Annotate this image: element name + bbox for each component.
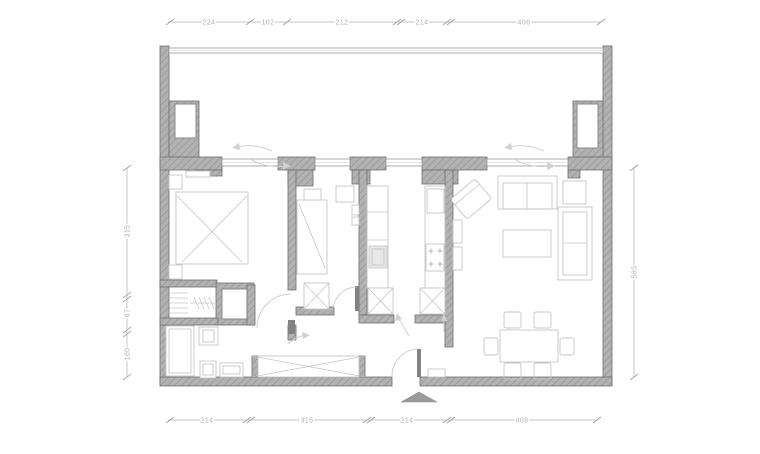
dimension-left: 315 87 160 [123,165,132,380]
bathroom [166,326,243,378]
dim-label: 585 [632,266,639,279]
wall-bottom-left [160,377,392,386]
wall-bottom-right [420,377,612,386]
pier-2 [350,157,386,170]
kitchen-entry-arrowhead [395,313,402,321]
bedroom-2 [297,186,359,311]
desk [336,186,354,202]
armchair [450,179,491,219]
nightstand [169,175,182,189]
wall-shelf [186,171,210,177]
dining-table [500,330,558,362]
fridge [427,189,444,213]
pillow [304,189,321,200]
floor-plan-canvas: 224 102 212 214 406 214 315 214 408 315 … [0,0,760,454]
double-bed [176,192,248,264]
wardrobe-cap-left [252,356,258,377]
dim-label: 315 [301,418,314,425]
dim-label: 214 [201,418,214,425]
entrance-door-leaf [417,349,421,377]
dim-label: 406 [518,20,531,27]
slide-arrow-icon [236,146,272,151]
entrance-door-arc [392,349,419,377]
dining-chair [484,338,498,355]
dim-label: 160 [125,348,132,361]
wall-kitchen-bottom-left [359,315,394,323]
dimension-bottom: 214 315 214 408 [166,417,601,425]
pier-3 [422,157,487,170]
wall-bath-corridor [247,285,255,325]
dim-label: 87 [125,309,132,318]
dim-label: 408 [516,418,529,425]
wardrobe-cap-right [359,356,365,377]
walk-in-closet [170,293,215,313]
wall-bed1-right-upper [288,170,296,290]
floor-plan-drawing: 224 102 212 214 406 214 315 214 408 315 … [0,0,760,454]
dim-label: 214 [416,20,429,27]
wall-main-left [160,157,222,170]
dim-label: 224 [203,20,216,27]
nightstand [169,265,182,279]
kitchen [367,186,445,336]
slide-arrowhead-icon [232,143,240,150]
coffee-table [503,230,551,257]
door-leaf-bedroom1 [288,320,295,334]
doormat [428,369,445,377]
wall-shelf [352,217,359,225]
wall-main-right [568,157,612,170]
slide-arrowhead-icon [504,143,512,150]
dining-chair [534,312,551,328]
dining-chair [560,338,574,355]
stove [426,244,444,271]
wall-bed2-kitchen [359,170,367,315]
dimension-top: 224 102 212 214 406 [166,19,605,27]
niche-left [175,104,196,138]
counter-left [367,186,388,288]
wall-main-right-tab [568,170,580,178]
slide-arrow-icon [508,146,544,151]
side-table [563,181,586,204]
bedroom-1 [169,171,248,279]
living-room [450,176,592,379]
dim-label: 315 [125,225,132,238]
dim-label: 214 [401,418,414,425]
niche-right [577,104,598,148]
wall-shelf [352,205,359,215]
shower-interior [222,289,248,319]
kitchen-entry-arrow [398,318,409,336]
wall-closet-bottom [160,318,218,325]
closet-shelves [170,293,188,313]
bidet [200,361,216,378]
shower-tray [166,326,194,376]
sofa-two-seater [498,176,557,209]
wall-right-exterior [603,46,612,385]
tv-unit [453,220,462,243]
door-arc-bedroom1 [257,294,291,328]
door-arc-bedroom2 [333,287,357,311]
tv-unit [453,247,462,270]
entrance-triangle-icon [401,392,437,402]
dining-chair [504,312,521,328]
dimension-right: 585 [630,165,639,380]
dim-label: 212 [336,20,349,27]
hall-arrowhead [302,332,310,339]
door-leaf-bedroom2 [355,286,359,311]
dim-label: 102 [262,20,275,27]
wall-bed1-bottom [160,280,217,287]
